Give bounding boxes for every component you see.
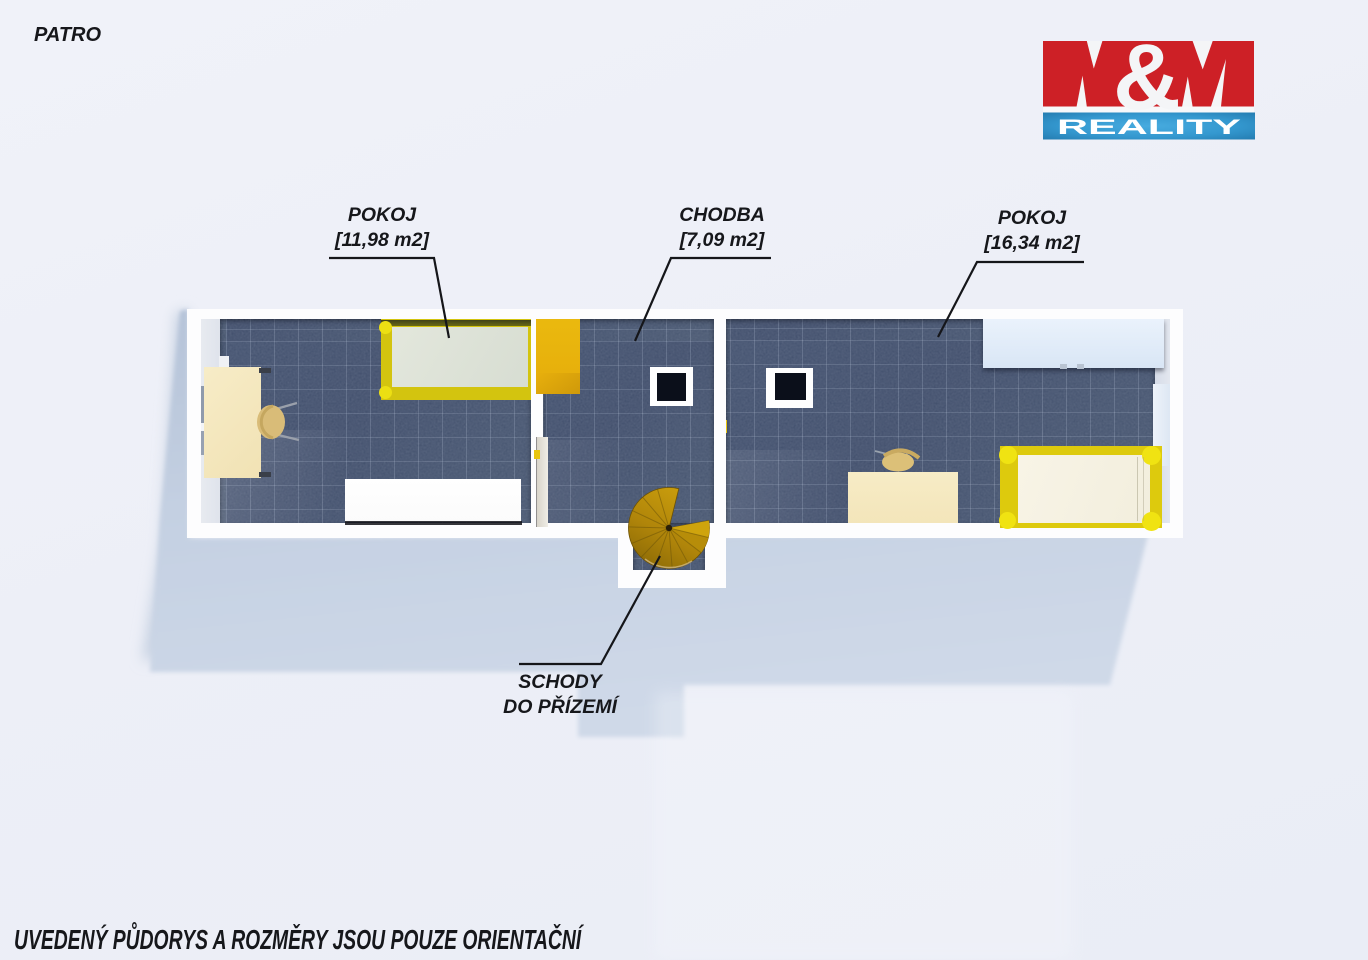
svg-text:REALITY: REALITY <box>1057 116 1241 139</box>
